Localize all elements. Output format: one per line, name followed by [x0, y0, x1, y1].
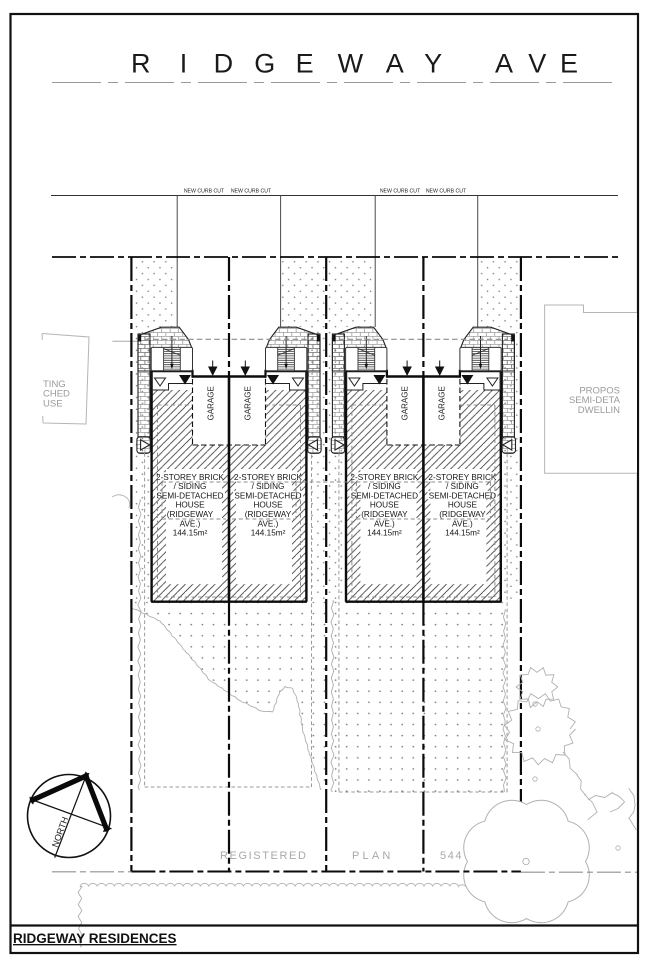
- svg-text:144.15m²: 144.15m²: [251, 529, 286, 538]
- svg-text:E: E: [296, 49, 314, 79]
- svg-text:144.15m²: 144.15m²: [445, 529, 480, 538]
- svg-text:/ SIDING: / SIDING: [174, 482, 207, 491]
- svg-text:SEMI-DETACHED: SEMI-DETACHED: [429, 491, 496, 500]
- svg-text:/ SIDING: / SIDING: [368, 482, 401, 491]
- svg-text:(RIDGEWAY: (RIDGEWAY: [361, 510, 408, 519]
- svg-text:SEMI-DETACHED: SEMI-DETACHED: [156, 491, 223, 500]
- svg-text:GARAGE: GARAGE: [401, 386, 410, 420]
- svg-text:E: E: [560, 49, 578, 79]
- svg-text:HOUSE: HOUSE: [175, 501, 205, 510]
- svg-text:HOUSE: HOUSE: [253, 501, 283, 510]
- svg-text:(RIDGEWAY: (RIDGEWAY: [439, 510, 486, 519]
- svg-text:GARAGE: GARAGE: [243, 386, 252, 420]
- svg-text:DWELLIN: DWELLIN: [578, 405, 620, 416]
- svg-text:I: I: [180, 49, 188, 79]
- svg-text:2-STOREY BRICK: 2-STOREY BRICK: [234, 473, 302, 482]
- svg-text:(RIDGEWAY: (RIDGEWAY: [167, 510, 214, 519]
- svg-text:A: A: [495, 49, 513, 79]
- svg-text:544: 544: [440, 850, 463, 862]
- svg-text:REGISTERED: REGISTERED: [220, 850, 308, 862]
- svg-text:SEMI-DETACHED: SEMI-DETACHED: [351, 491, 418, 500]
- svg-text:D: D: [214, 49, 234, 79]
- svg-text:HOUSE: HOUSE: [448, 501, 478, 510]
- svg-text:144.15m²: 144.15m²: [173, 529, 208, 538]
- svg-text:NEW CURB CUT: NEW CURB CUT: [184, 189, 225, 195]
- svg-text:144.15m²: 144.15m²: [367, 529, 402, 538]
- svg-text:2-STOREY BRICK: 2-STOREY BRICK: [156, 473, 224, 482]
- svg-text:AVE.): AVE.): [258, 519, 279, 528]
- svg-text:GARAGE: GARAGE: [206, 386, 215, 420]
- svg-text:V: V: [528, 49, 546, 79]
- svg-text:HOUSE: HOUSE: [370, 501, 400, 510]
- svg-text:G: G: [254, 49, 275, 79]
- svg-text:AVE.): AVE.): [180, 519, 201, 528]
- svg-text:GARAGE: GARAGE: [438, 386, 447, 420]
- svg-text:A: A: [386, 49, 404, 79]
- svg-text:PLAN: PLAN: [352, 850, 394, 862]
- svg-text:/ SIDING: / SIDING: [446, 482, 479, 491]
- svg-text:(RIDGEWAY: (RIDGEWAY: [245, 510, 292, 519]
- svg-text:AVE.): AVE.): [452, 519, 473, 528]
- svg-text:USE: USE: [43, 398, 63, 409]
- svg-text:Y: Y: [424, 49, 442, 79]
- svg-text:SEMI-DETACHED: SEMI-DETACHED: [234, 491, 301, 500]
- svg-text:W: W: [338, 49, 364, 79]
- svg-text:NEW CURB CUT: NEW CURB CUT: [231, 189, 272, 195]
- svg-text:/ SIDING: / SIDING: [252, 482, 285, 491]
- svg-text:NEW CURB CUT: NEW CURB CUT: [426, 189, 467, 195]
- svg-text:2-STOREY BRICK: 2-STOREY BRICK: [428, 473, 496, 482]
- svg-text:AVE.): AVE.): [374, 519, 395, 528]
- svg-text:R: R: [131, 49, 151, 79]
- svg-text:2-STOREY BRICK: 2-STOREY BRICK: [350, 473, 418, 482]
- svg-text:NEW CURB CUT: NEW CURB CUT: [380, 189, 421, 195]
- svg-text:RIDGEWAY RESIDENCES: RIDGEWAY RESIDENCES: [13, 931, 177, 946]
